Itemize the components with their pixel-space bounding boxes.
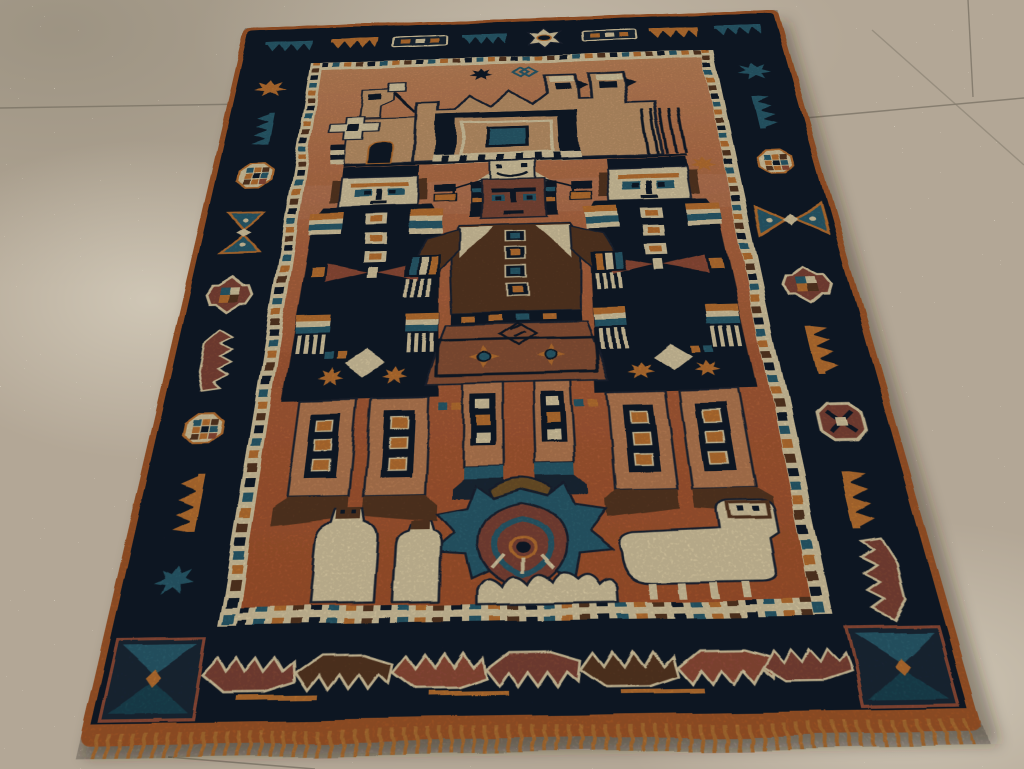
photo: [0, 0, 1024, 769]
